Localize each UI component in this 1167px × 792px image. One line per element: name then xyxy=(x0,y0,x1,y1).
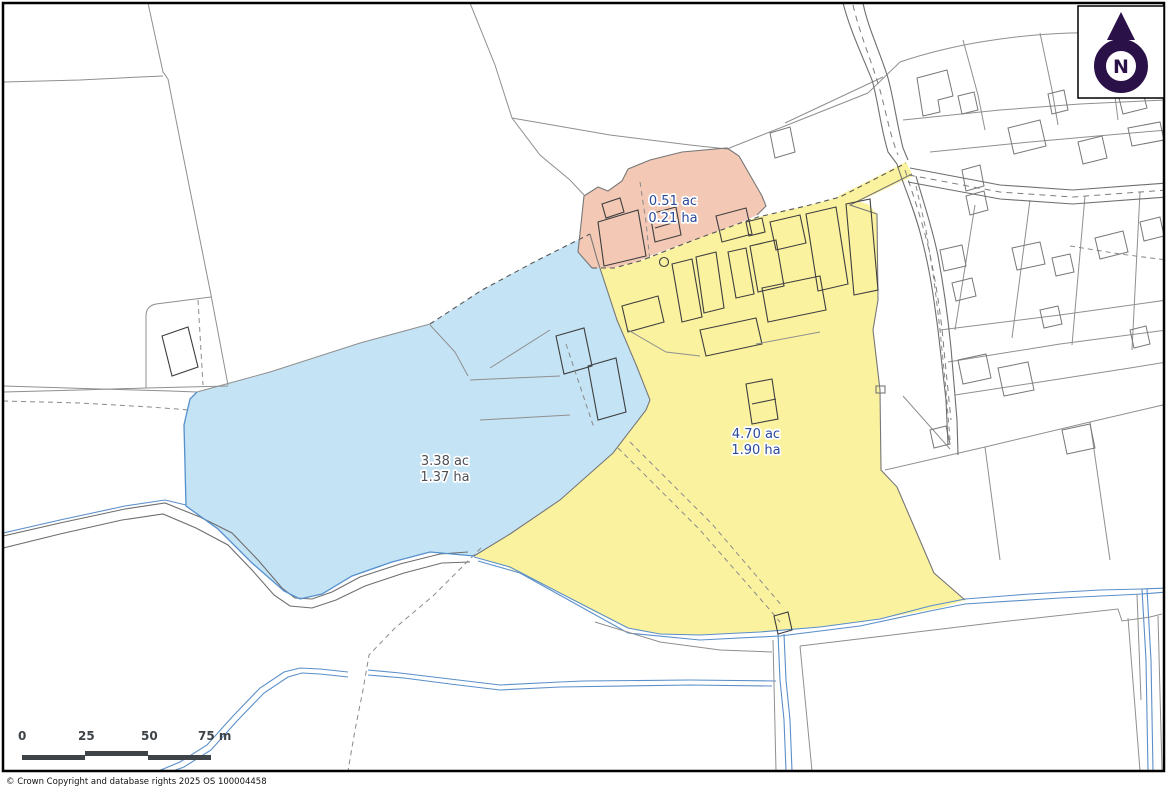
map-canvas: 0.51 ac 0.21 ha 3.38 ac 1.37 ha 4.70 ac … xyxy=(0,0,1167,792)
pink-area-acres: 0.51 ac xyxy=(649,194,697,209)
scale-segment xyxy=(22,755,85,760)
blue-area-hectares: 1.37 ha xyxy=(420,470,469,485)
scale-tick-label: 0 xyxy=(18,729,26,743)
pink-area-hectares: 0.21 ha xyxy=(648,211,697,226)
parcel-yellow-spur xyxy=(838,162,913,208)
yellow-area-hectares: 1.90 ha xyxy=(731,443,780,458)
north-arrow: N xyxy=(1078,6,1164,98)
scale-tick-label: 25 xyxy=(78,729,95,743)
yellow-area-acres: 4.70 ac xyxy=(732,427,780,442)
map-page: 0.51 ac 0.21 ha 3.38 ac 1.37 ha 4.70 ac … xyxy=(0,0,1167,792)
scale-bar: 0 25 50 75 m xyxy=(18,729,231,760)
scale-tick-label: 50 xyxy=(141,729,158,743)
scale-tick-label: 75 m xyxy=(198,729,231,743)
scale-segment xyxy=(148,755,211,760)
map-content: 0.51 ac 0.21 ha 3.38 ac 1.37 ha 4.70 ac … xyxy=(3,3,1167,775)
north-letter: N xyxy=(1113,56,1129,78)
copyright-text: © Crown Copyright and database rights 20… xyxy=(6,777,267,787)
village-buildings xyxy=(917,70,1164,454)
scale-segment xyxy=(85,751,148,756)
blue-area-acres: 3.38 ac xyxy=(421,454,469,469)
